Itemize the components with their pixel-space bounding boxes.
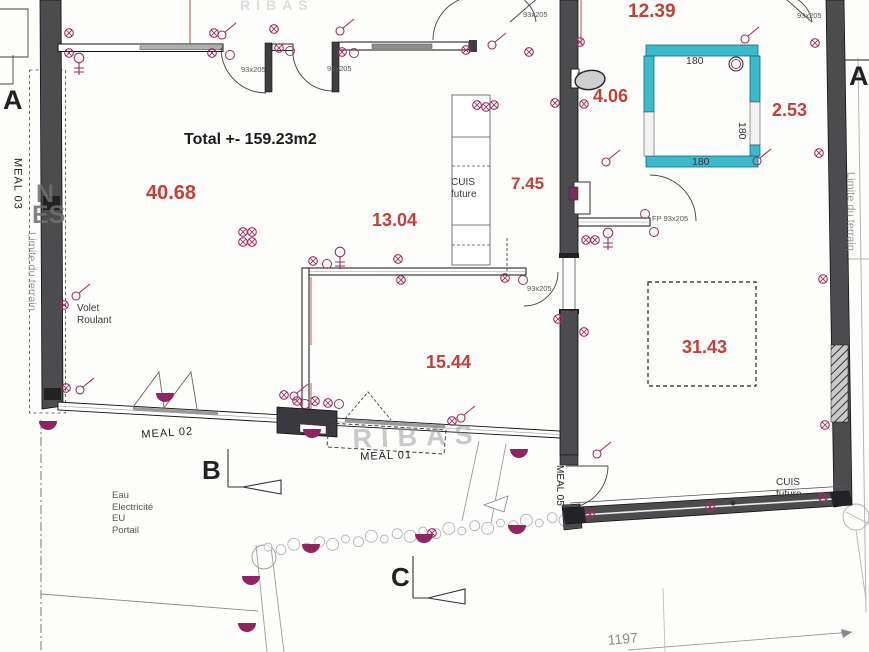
walls [30,0,853,530]
outlet-icon [580,100,589,109]
outlet-icon [582,236,591,245]
spotlight-icon [302,544,320,553]
future-room-dashed-outline [648,282,756,386]
spotlight-icon [415,534,433,543]
outlet-icon [815,149,824,158]
outlet-icon [311,397,320,406]
small-dot-icon [731,501,736,506]
outlet-icon [811,39,820,48]
outlet-icon [280,391,289,400]
fixtures [569,45,760,386]
switch-icon [488,33,506,49]
fixture-circle-icon [335,400,344,409]
outlet-icon [65,29,74,38]
ceiling-light-icon [603,228,613,250]
outlet-icon [270,25,279,34]
outlet-icon [591,236,600,245]
switch-icon [336,19,354,35]
outlet-icon [397,276,406,285]
fixture-circle-icon [641,210,650,219]
outlet-icon [580,328,589,337]
outlet-icon [239,238,248,247]
electrical-symbols [39,19,829,632]
fixture-circle-icon [650,228,659,237]
floor-plan: Total +- 159.23m240.6813.0415.447.4512.3… [0,0,869,652]
site-boundaries [0,9,869,652]
outlet-icon [239,228,248,237]
outlet-icon [324,399,333,408]
ceiling-light-icon [335,247,345,269]
toilet-icon [571,69,606,92]
switch-icon [457,406,475,422]
fixture-circle-icon [226,51,235,60]
outlet-icon [490,101,499,110]
outlet-icon [448,417,457,426]
outlet-icon [248,228,257,237]
spotlight-icon [156,393,174,402]
spotlight-icon [39,421,57,430]
outlet-icon [551,99,560,108]
switch-icon [76,378,94,394]
outlet-icon [309,257,318,266]
outlet-icon [248,238,257,247]
fixture-circle-icon [519,276,528,285]
spotlight-icon [303,429,321,438]
outlet-icon [210,29,219,38]
outlet-icon [525,48,534,57]
switch-icon [593,442,611,458]
ceiling-light-icon [74,53,84,75]
spotlight-icon [242,576,260,585]
spotlight-icon [510,449,528,458]
switch-icon [72,284,90,300]
outlet-icon [821,421,830,430]
floor-plan-linework [0,0,869,652]
spotlight-icon [238,623,256,632]
section-flags [228,449,465,604]
outlet-icon [394,255,403,264]
outlet-icon [819,275,828,284]
switch-icon [741,27,759,43]
spotlight-icon [508,525,526,534]
switch-icon [602,150,620,166]
fixture-circle-icon [323,260,332,269]
switch-icon [218,23,236,39]
